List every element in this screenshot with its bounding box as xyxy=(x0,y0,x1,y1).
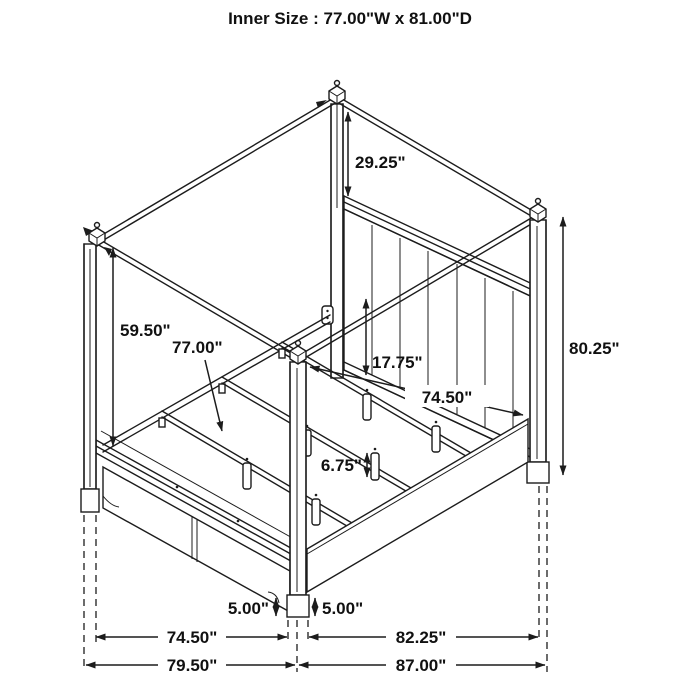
dim-label-side-inner-depth: 82.25" xyxy=(396,628,447,647)
post-left-foot xyxy=(81,489,99,512)
dim-label-foot-left: 5.00" xyxy=(228,599,269,618)
dim-label-overall-height: 80.25" xyxy=(569,339,620,358)
dim-leader-slat-width xyxy=(205,360,222,431)
post-right xyxy=(527,220,549,483)
bed-dimension-diagram: Inner Size : 77.00"W x 81.00"D 29.25" 59… xyxy=(0,0,700,700)
post-front-foot xyxy=(287,595,309,617)
dim-label-post-clear-height: 59.50" xyxy=(120,321,171,340)
dim-label-inner-depth: 74.50" xyxy=(422,388,473,407)
post-left xyxy=(81,244,99,512)
dim-label-slat-leg: 6.75" xyxy=(321,456,362,475)
rail-bracket xyxy=(322,306,333,324)
corner-block xyxy=(329,81,345,105)
corner-block xyxy=(89,223,105,247)
side-rail-right xyxy=(307,419,528,592)
dim-label-rail-height: 17.75" xyxy=(372,353,423,372)
dim-label-footboard-outer-width: 79.50" xyxy=(167,656,218,675)
diagram-title: Inner Size : 77.00"W x 81.00"D xyxy=(228,9,472,28)
footboard xyxy=(96,431,298,612)
dim-label-foot-right: 5.00" xyxy=(322,599,363,618)
post-right-foot xyxy=(527,462,549,483)
dim-label-canopy-height: 29.25" xyxy=(355,153,406,172)
dim-label-side-outer-depth: 87.00" xyxy=(396,656,447,675)
corner-arrow-icon xyxy=(316,100,327,108)
dim-label-footboard-inner-width: 74.50" xyxy=(167,628,218,647)
corner-block xyxy=(530,199,546,223)
post-front xyxy=(287,362,309,617)
dim-label-slat-width: 77.00" xyxy=(172,338,223,357)
corner-arrow-icon xyxy=(104,247,112,256)
diagram-canvas: Inner Size : 77.00"W x 81.00"D 29.25" 59… xyxy=(0,0,700,700)
